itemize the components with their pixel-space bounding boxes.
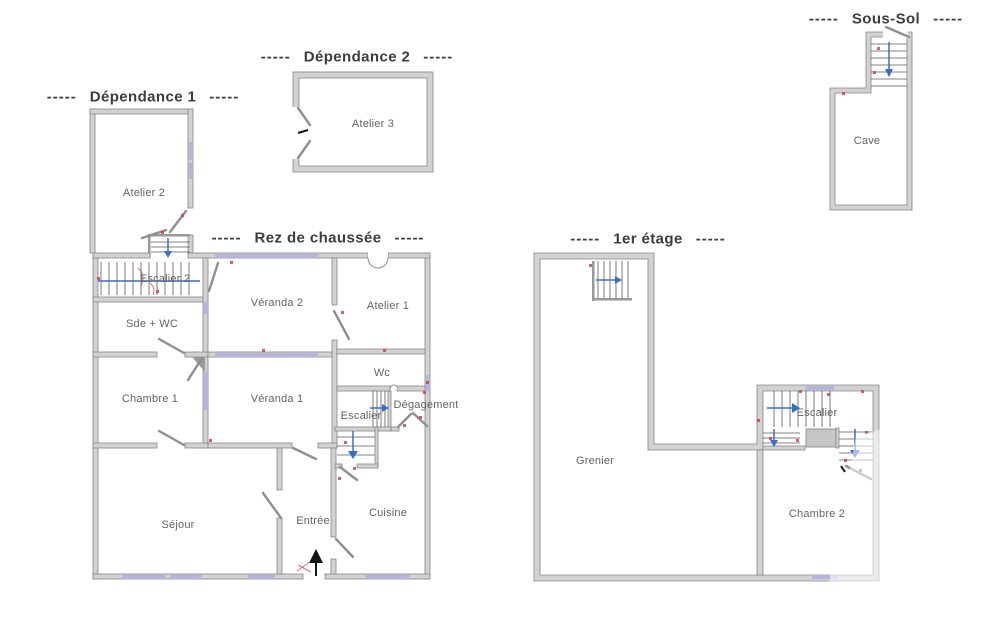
room-label-grenier: Grenier (576, 455, 614, 467)
room-label-chambre2: Chambre 2 (789, 508, 845, 520)
etage-staircase-grenier (578, 261, 632, 301)
title-dashes: ----- (212, 230, 242, 247)
title-dashes: ----- (394, 230, 424, 247)
room-label-cave: Cave (854, 135, 880, 147)
room-label-chambre1: Chambre 1 (122, 393, 178, 405)
title-text: 1er étage (613, 231, 682, 248)
room-label-atelier2: Atelier 2 (123, 187, 165, 199)
sous-sol-staircase (871, 42, 907, 86)
section-title-dependance1: ----- Dépendance 1 ----- (47, 89, 239, 106)
section-title-1er-etage: ----- 1er étage ----- (570, 231, 725, 248)
room-label-degagement: Dégagement (394, 399, 459, 411)
section-title-sous-sol: ----- Sous-Sol ----- (809, 11, 963, 28)
title-dashes: ----- (423, 49, 453, 66)
title-dashes: ----- (261, 49, 291, 66)
title-dashes: ----- (570, 231, 600, 248)
title-dashes: ----- (47, 89, 77, 106)
title-dashes: ----- (933, 11, 963, 28)
room-label-atelier1: Atelier 1 (367, 300, 409, 312)
room-label-escalier2: Escalier 2 (140, 273, 190, 285)
title-dashes: ----- (209, 89, 239, 106)
section-title-rez-de-chaussee: ----- Rez de chaussée ----- (212, 230, 425, 247)
room-label-veranda1: Véranda 1 (251, 393, 304, 405)
dependance1-staircase (148, 234, 190, 258)
dependance1-walls (90, 109, 193, 253)
room-label-veranda2: Véranda 2 (251, 297, 304, 309)
title-text: Sous-Sol (852, 11, 920, 28)
entrance-arrow (297, 549, 323, 576)
room-label-atelier3: Atelier 3 (352, 118, 394, 130)
title-dashes: ----- (696, 231, 726, 248)
title-text: Rez de chaussée (255, 230, 382, 247)
room-label-sde-wc: Sde + WC (126, 318, 178, 330)
room-label-wc: Wc (374, 367, 390, 379)
dependance1-door-flaps (142, 211, 186, 238)
photo-watermark (820, 428, 934, 631)
room-label-cuisine: Cuisine (369, 507, 407, 519)
stair-landing (806, 429, 836, 447)
title-dashes: ----- (809, 11, 839, 28)
title-text: Dépendance 2 (304, 49, 411, 66)
rdc-staircase-main (337, 391, 389, 459)
room-label-escalier-etage: Escalier (797, 407, 838, 419)
section-title-dependance2: ----- Dépendance 2 ----- (261, 49, 453, 66)
room-label-sejour: Séjour (162, 519, 195, 531)
title-text: Dépendance 1 (90, 89, 197, 106)
room-label-entree: Entrée (296, 515, 330, 527)
sous-sol-walls (830, 27, 912, 210)
floor-plan-canvas: ----- Dépendance 1 ----- ----- Dépendanc… (0, 0, 1000, 631)
room-label-escalier-rdc: Escalier (341, 410, 382, 422)
